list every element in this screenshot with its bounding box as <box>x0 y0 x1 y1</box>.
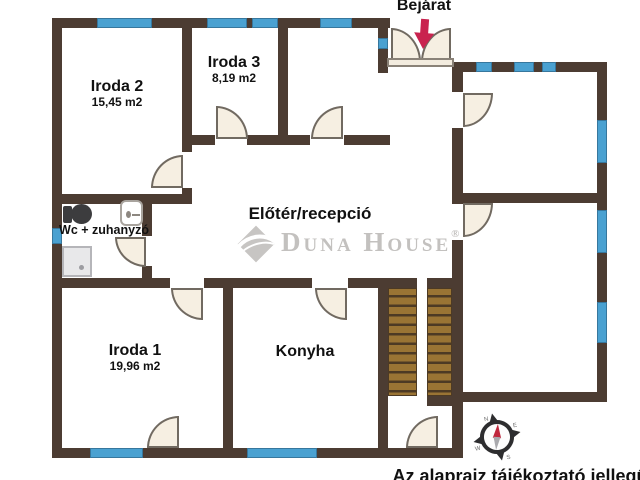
window <box>542 62 556 72</box>
compass-w-label: W <box>475 446 482 453</box>
compass-e-label: E <box>513 423 518 430</box>
room-label-iroda3: Iroda 3 8,19 m2 <box>208 54 260 85</box>
stair-landing-edge <box>388 278 417 288</box>
entrance-arrow-icon <box>409 18 439 52</box>
window <box>252 18 278 28</box>
room-name: Iroda 1 <box>109 342 161 359</box>
door-iroda3 <box>216 106 248 139</box>
stairs-left-flight <box>388 288 417 396</box>
door-stairwell <box>406 416 438 448</box>
wall-iroda3-right <box>278 28 288 135</box>
wall-iroda2-iroda3-divider-lower <box>182 188 192 204</box>
registered-mark: ® <box>451 228 459 240</box>
wall-middle-1 <box>52 278 170 288</box>
room-label-eloter: Előtér/recepció <box>249 205 372 223</box>
stair-landing-edge <box>427 278 452 288</box>
room-label-konyha: Konyha <box>276 343 335 360</box>
window <box>514 62 534 72</box>
stair-landing-edge <box>427 396 452 406</box>
wall-iroda1-konyha-divider <box>223 288 233 448</box>
door-iroda2 <box>151 155 183 188</box>
room-area: 8,19 m2 <box>208 71 260 85</box>
wall-stairwell-left <box>378 278 388 458</box>
toilet-bowl-icon <box>71 204 92 224</box>
compass-s-label: S <box>506 455 511 462</box>
window <box>476 62 492 72</box>
door-upper-right-room <box>463 93 493 127</box>
door-wc <box>115 237 146 267</box>
window <box>597 302 607 343</box>
window <box>320 18 352 28</box>
wall-iroda3-bottom-3 <box>344 135 390 145</box>
floor-plan: Duna House® N E S W Bejárat Iroda 2 15,4… <box>0 0 640 480</box>
wall-right-vertical-3 <box>452 240 463 458</box>
room-name: Iroda 2 <box>91 78 143 95</box>
room-name: Konyha <box>276 343 335 360</box>
window <box>90 448 143 458</box>
shower-drain <box>79 265 84 270</box>
stairs-right-flight <box>427 288 452 396</box>
wall-iroda2-iroda3-divider <box>182 28 192 152</box>
room-name: Előtér/recepció <box>249 205 372 223</box>
compass-icon: N E S W <box>471 411 523 463</box>
window <box>247 448 317 458</box>
window <box>597 210 607 253</box>
compass-n-label: N <box>484 416 489 423</box>
disclaimer-text: Az alaprajz tájékoztató jellegű! <box>392 466 640 480</box>
window <box>97 18 152 28</box>
shower-tray-icon <box>62 246 92 277</box>
door-konyha <box>315 288 347 320</box>
window <box>207 18 247 28</box>
wall-iroda3-bottom-2 <box>247 135 310 145</box>
room-area: 19,96 m2 <box>109 359 161 373</box>
door-iroda1 <box>171 288 203 320</box>
room-label-iroda1: Iroda 1 19,96 m2 <box>109 342 161 373</box>
wall-right-room-bottom <box>452 392 607 402</box>
room-name: Iroda 3 <box>208 54 260 71</box>
wall-right-rooms-divider <box>455 193 597 203</box>
sink-faucet <box>132 214 140 216</box>
room-label-wc: Wc + zuhanyzó <box>59 223 149 237</box>
dunahouse-watermark: Duna House® <box>281 227 459 258</box>
window <box>378 38 388 49</box>
watermark-brand: Duna House <box>281 227 451 257</box>
room-area: 15,45 m2 <box>91 95 143 109</box>
wall-middle-2 <box>204 278 312 288</box>
dunahouse-logo-icon <box>233 224 279 264</box>
door-hall-room <box>311 106 343 139</box>
door-iroda1-exterior <box>147 416 179 448</box>
entrance-door-sill <box>387 58 454 67</box>
entrance-label: Bejárat <box>397 0 451 15</box>
door-lower-right-room <box>463 203 493 237</box>
window <box>597 120 607 163</box>
wall-iroda3-bottom-1 <box>182 135 215 145</box>
sink-drain <box>126 211 131 218</box>
room-label-iroda2: Iroda 2 15,45 m2 <box>91 78 143 109</box>
